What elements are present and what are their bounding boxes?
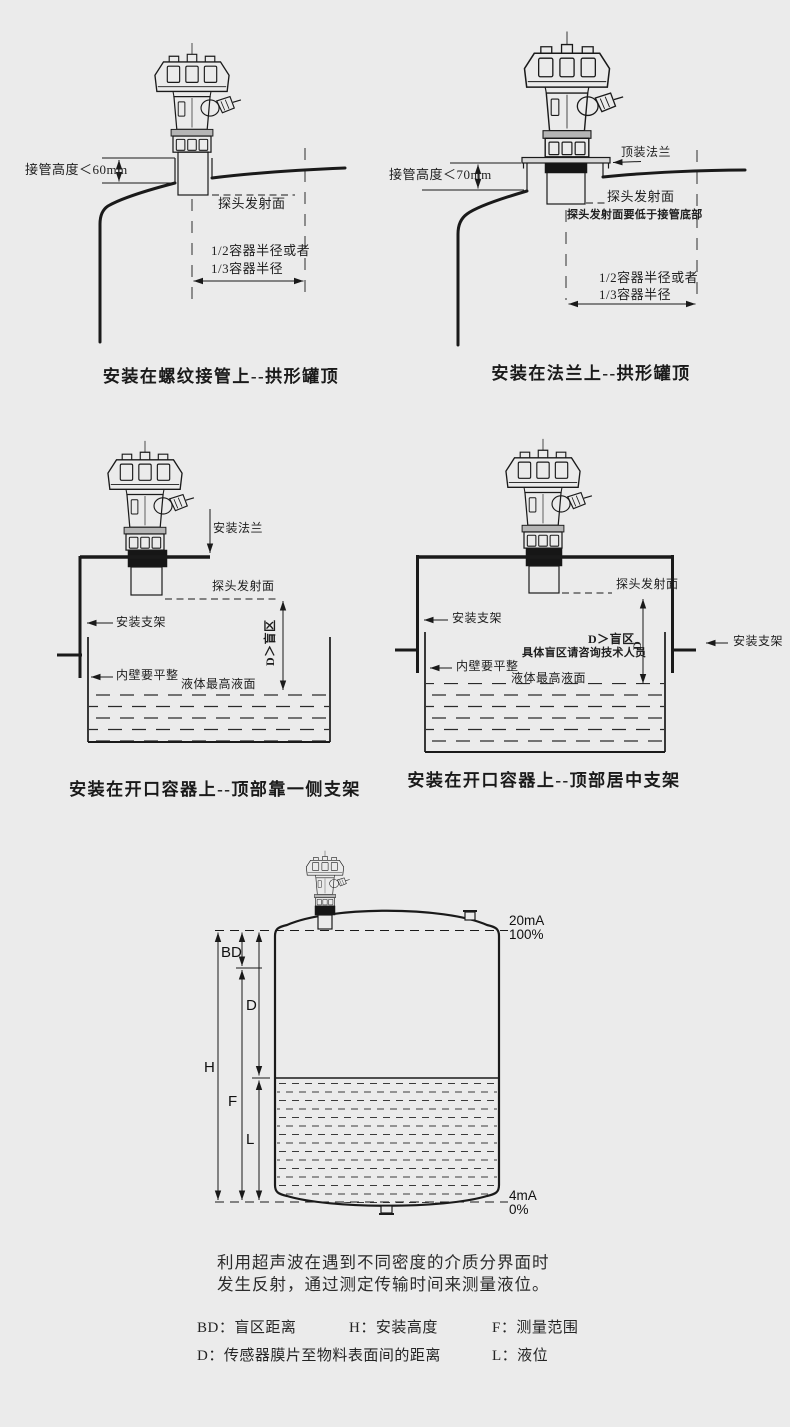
label-blind-zone-4: D＞盲区 — [588, 633, 635, 647]
label-blind-note: 具体盲区请咨询技术人员 — [522, 647, 646, 660]
dim-label-bd: BD — [221, 944, 242, 961]
legend-h-key: H： — [349, 1320, 376, 1336]
legend-d-key: D： — [197, 1348, 224, 1364]
label-pipe-height-60: 接管高度＜60mm — [25, 163, 128, 178]
sensor-1 — [155, 43, 241, 152]
liquid-fill — [89, 689, 329, 741]
sensor-3 — [108, 441, 194, 550]
caption-diagram4: 安装在开口容器上--顶部居中支架 — [394, 766, 694, 791]
label-0pct: 0% — [509, 1202, 529, 1217]
label-probe-face-4: 探头发射面 — [616, 578, 679, 592]
description-line-2: 发生反射，通过测定传输时间来测量液位。 — [217, 1271, 550, 1295]
label-max-level-3: 液体最高液面 — [181, 678, 256, 692]
description-line-1: 利用超声波在遇到不同密度的介质分界面时 — [217, 1249, 550, 1273]
tank-roof-right — [212, 168, 345, 178]
label-radius1-2: 1/2容器半径或者 — [599, 271, 698, 286]
flange-pointer — [613, 162, 641, 163]
sensor-5 — [306, 851, 349, 906]
manual-page: 接管高度＜60mm 探头发射面 1/2容器半径或者 1/3容器半径 安装在螺纹接… — [0, 0, 790, 1427]
caption-diagram2: 安装在法兰上--拱形罐顶 — [441, 359, 741, 384]
label-mount-flange: 安装法兰 — [213, 522, 263, 536]
caption-diagram3: 安装在开口容器上--顶部靠一侧支架 — [65, 775, 365, 800]
label-probe-face-3: 探头发射面 — [212, 580, 275, 594]
label-blind-zone-3: D＞盲区 — [264, 619, 278, 666]
label-max-level-4: 液体最高液面 — [511, 672, 586, 686]
probe-cylinder — [318, 915, 332, 929]
label-bracket-3: 安装支架 — [116, 616, 166, 630]
legend-bd: BD：盲区距离 — [197, 1316, 296, 1337]
dim-label-l: L — [246, 1131, 254, 1148]
label-top-flange: 顶装法兰 — [621, 146, 671, 160]
legend-d-value: 传感器膜片至物料表面间的距离 — [224, 1348, 441, 1364]
liquid-fill — [426, 683, 664, 751]
caption-diagram1: 安装在螺纹接管上--拱形罐顶 — [71, 362, 371, 387]
sensor-2 — [524, 31, 623, 156]
legend-l: L：液位 — [492, 1344, 548, 1365]
thread-band — [315, 906, 335, 915]
tank-roof-left — [458, 191, 527, 345]
dim-label-h: H — [204, 1059, 215, 1076]
label-inner-wall-4: 内壁要平整 — [456, 660, 519, 674]
probe-cylinder — [178, 152, 208, 195]
label-4ma: 4mA — [509, 1188, 537, 1203]
label-20ma: 20mA — [509, 913, 544, 928]
diagram4-drawing — [395, 439, 728, 752]
label-probe-face-1: 探头发射面 — [218, 197, 286, 212]
diagram5-drawing — [215, 851, 508, 1214]
legend-f: F：测量范围 — [492, 1316, 578, 1337]
label-100pct: 100% — [509, 927, 544, 942]
probe-cylinder — [529, 566, 559, 593]
label-radius2-2: 1/3容器半径 — [599, 288, 671, 303]
top-nozzle — [465, 912, 475, 920]
label-bracket-4-left: 安装支架 — [452, 612, 502, 626]
legend-f-key: F： — [492, 1320, 516, 1336]
label-radius1-1: 1/2容器半径或者 — [211, 244, 310, 259]
bottom-nozzle — [381, 1206, 392, 1213]
legend-l-value: 液位 — [517, 1348, 548, 1364]
sensor-4 — [506, 439, 592, 548]
label-pipe-height-70: 接管高度＜70mm — [389, 168, 492, 183]
top-flange-plate — [522, 158, 610, 164]
label-bracket-4-right: 安装支架 — [733, 635, 783, 649]
diagram2-drawing — [422, 31, 745, 345]
legend-d: D：传感器膜片至物料表面间的距离 — [197, 1344, 441, 1365]
legend-f-value: 测量范围 — [516, 1320, 578, 1336]
dim-label-f: F — [228, 1093, 237, 1110]
tank-roof-left — [100, 183, 175, 342]
diagram1-drawing — [100, 43, 345, 342]
legend-bd-value: 盲区距离 — [234, 1320, 296, 1336]
label-radius2-1: 1/3容器半径 — [211, 262, 283, 277]
legend-bd-key: BD： — [197, 1320, 234, 1336]
label-probe-note: 探头发射面要低于接管底部 — [567, 209, 703, 222]
liquid-fill — [277, 1080, 497, 1204]
legend-h: H：安装高度 — [349, 1316, 438, 1337]
dim-label-d: D — [246, 997, 257, 1014]
label-probe-face-2: 探头发射面 — [607, 190, 675, 205]
diagram3-drawing — [57, 441, 330, 742]
legend-h-value: 安装高度 — [376, 1320, 438, 1336]
legend-l-key: L： — [492, 1348, 517, 1364]
tank-roof-right — [603, 170, 745, 177]
label-inner-wall-3: 内壁要平整 — [116, 669, 179, 683]
probe-cylinder — [131, 567, 162, 595]
